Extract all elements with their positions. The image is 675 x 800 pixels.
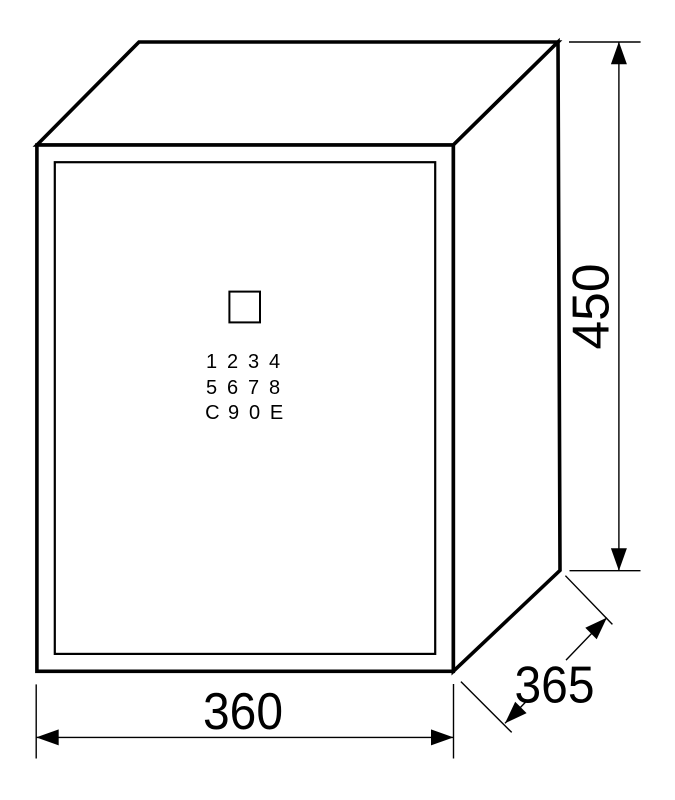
svg-text:365: 365 xyxy=(515,657,595,715)
svg-text:360: 360 xyxy=(203,683,283,741)
svg-text:450: 450 xyxy=(563,264,621,350)
